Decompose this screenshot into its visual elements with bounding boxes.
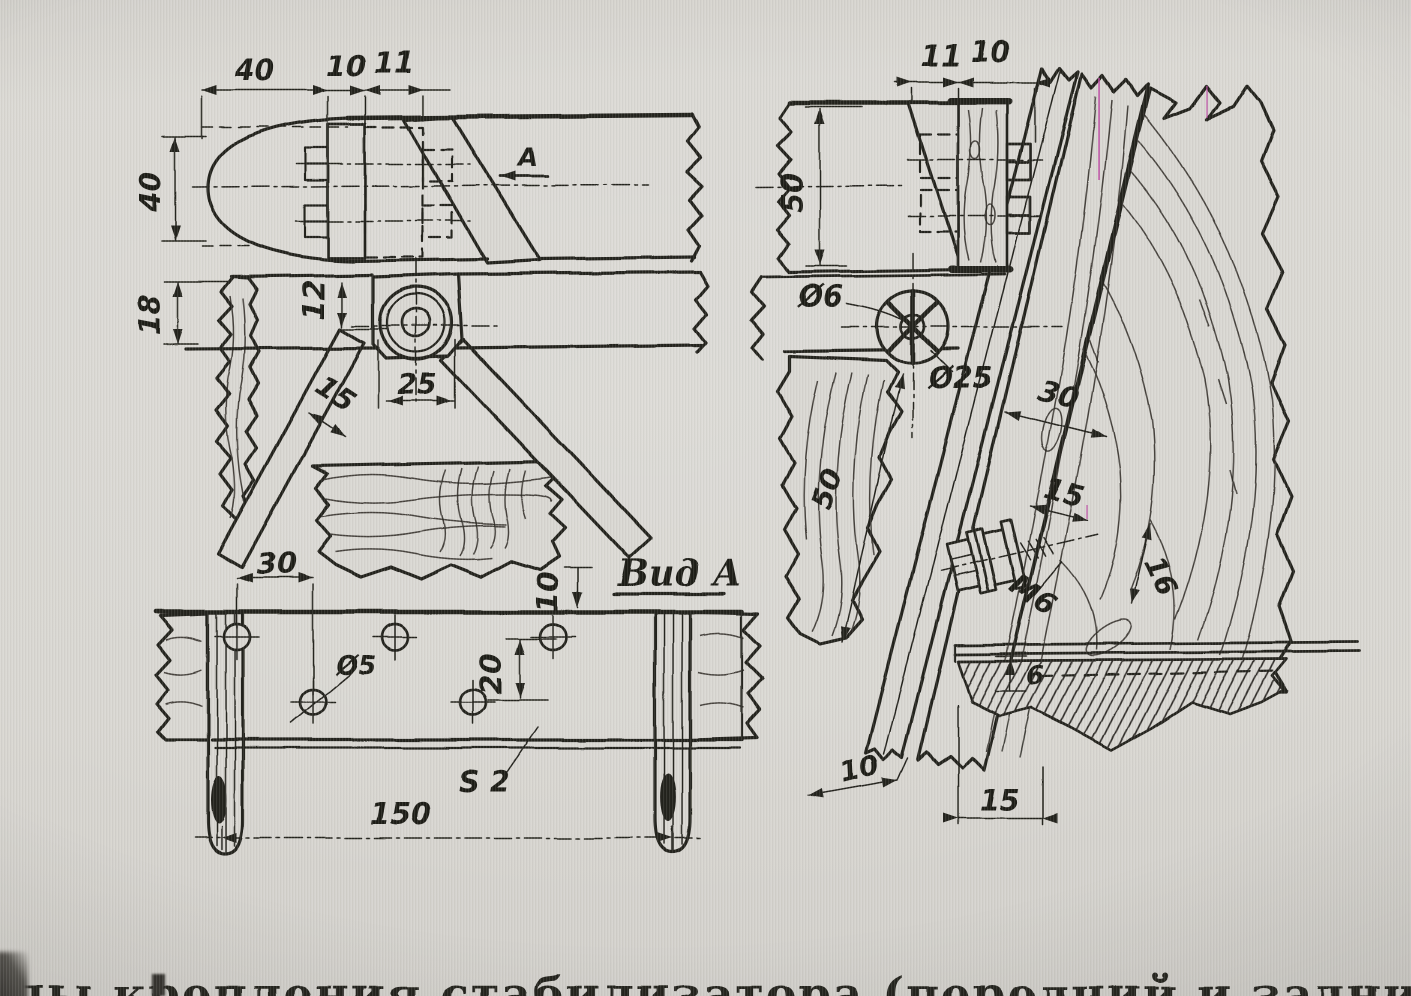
dim-label-10-top: 10 [326, 49, 366, 83]
dim-label-50-left: 50 [775, 173, 809, 213]
dim-label-6-strip: 6 [1026, 661, 1044, 691]
dim-label-11-top: 11 [921, 39, 961, 73]
dim-label-20: 20 [474, 654, 508, 694]
page-edge-mark [152, 974, 165, 996]
dim-label-40-top: 40 [234, 53, 275, 87]
dim-label-150: 150 [370, 797, 431, 831]
page-corner-shadow [0, 952, 28, 996]
fuselage-wood-block [312, 461, 565, 579]
dim-label-10: 10 [531, 572, 565, 612]
dim-label-10-top: 10 [970, 35, 1010, 69]
view-title: Вид А [614, 553, 742, 595]
dim-label-dia6: Ø6 [796, 279, 843, 313]
fuselage-wood-sliver [216, 277, 259, 519]
right-wood-plank [690, 612, 762, 740]
dim-label-40-left: 40 [133, 172, 167, 213]
hatched-spacer-block [305, 124, 365, 258]
figure-caption: Узлы крепления стабилизатора (передний и… [0, 967, 1411, 996]
view-a-title: Вид А [617, 553, 742, 595]
left-wood-plank [156, 614, 208, 740]
dim-label-11-top: 11 [374, 46, 414, 80]
front-attachment-view: 40 10 11 40 18 12 25 15 А [133, 46, 708, 579]
dim-label-12: 12 [297, 280, 331, 320]
dim-label-s2: S 2 [458, 765, 509, 799]
dim-label-18-left: 18 [133, 295, 167, 335]
dim-label-dia25: Ø25 [926, 361, 993, 395]
strut-end-right [655, 612, 690, 852]
dim-label-25: 25 [397, 367, 437, 401]
rivet-holes [215, 615, 575, 724]
dim-label-30: 30 [256, 547, 296, 581]
dim-label-15-bottom: 15 [980, 783, 1020, 817]
technical-drawing: 40 10 11 40 18 12 25 15 А [0, 0, 1411, 996]
rear-attachment-view: 11 10 50 Ø6 Ø25 30 15 16 М6 50 6 10 15 [751, 35, 1360, 824]
view-arrow-label: А [516, 143, 538, 173]
spar-end-block [951, 103, 1010, 269]
dim-label-dia5: Ø5 [334, 651, 376, 681]
view-a-projection: Вид А 30 10 20 Ø5 S 2 150 [155, 547, 762, 854]
photographed-page: 40 10 11 40 18 12 25 15 А [0, 0, 1411, 996]
bracket-upper [404, 117, 540, 263]
